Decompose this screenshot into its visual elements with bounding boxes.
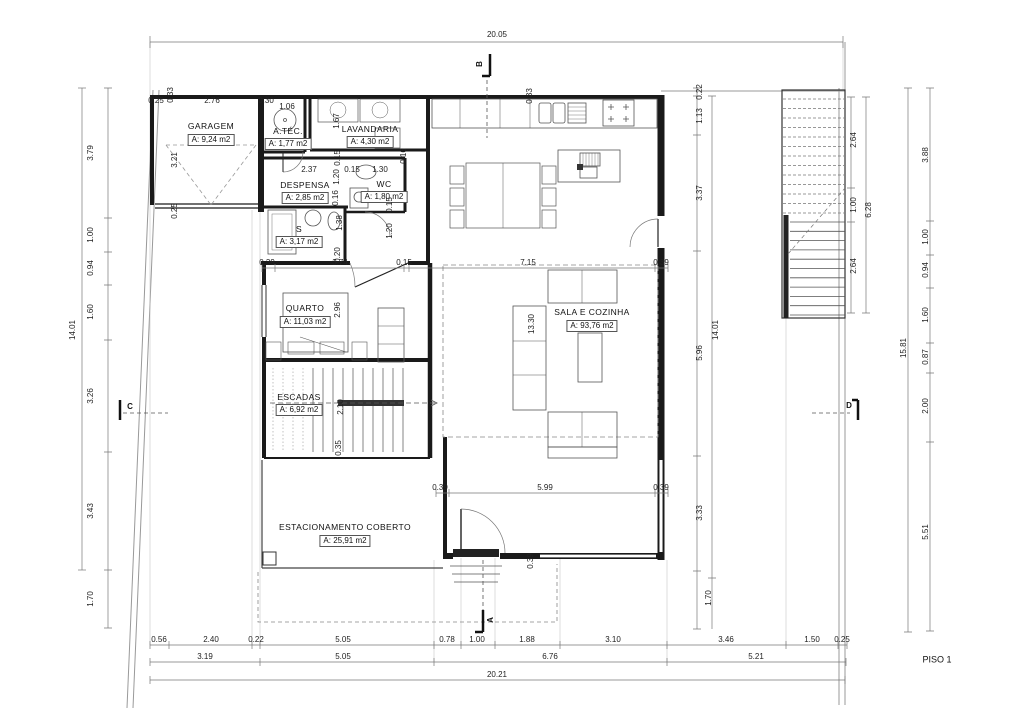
dim: 3.37 xyxy=(696,185,704,201)
room-area-atec: A: 1,77 m2 xyxy=(265,138,312,150)
dim: 1.70 xyxy=(705,590,713,606)
sink-basin xyxy=(553,103,565,123)
room-area-quarto: A: 11,03 m2 xyxy=(280,316,331,328)
dim: 0.35 xyxy=(335,440,343,456)
dim: 0.78 xyxy=(439,636,455,644)
plan-linework xyxy=(0,0,1010,720)
dim: 6.76 xyxy=(542,653,558,661)
dim: 5.05 xyxy=(335,636,351,644)
dim: 3.43 xyxy=(87,503,95,519)
drainer xyxy=(568,103,586,123)
dim: 1.06 xyxy=(279,103,295,111)
section-marker-a: A xyxy=(487,617,495,623)
room-area-s: A: 3,17 m2 xyxy=(276,236,323,248)
room-area-sala: A: 93,76 m2 xyxy=(566,320,617,332)
stove xyxy=(603,100,634,126)
dim: 3.46 xyxy=(718,636,734,644)
dim: 1.67 xyxy=(333,113,341,129)
room-label-estacionamento: ESTACIONAMENTO COBERTO xyxy=(279,523,411,532)
room-area-lavandaria: A: 4,30 m2 xyxy=(347,136,394,148)
floor-label: PISO 1 xyxy=(922,656,951,665)
dim: 5.96 xyxy=(696,345,704,361)
room-label-garagem: GARAGEM xyxy=(188,122,234,131)
sink-basin xyxy=(539,103,551,123)
garage-door-dashes xyxy=(166,145,256,205)
dim: 0.15 xyxy=(334,150,342,166)
dim: 1.30 xyxy=(372,166,388,174)
dim-mid-total: 14.01 xyxy=(712,320,720,340)
dim: 1.38 xyxy=(336,215,344,231)
section-marker-c: C xyxy=(127,403,133,411)
section-marker-d: D xyxy=(846,402,852,410)
dim: 1.13 xyxy=(696,108,704,124)
room-label-lavandaria: LAVANDARIA xyxy=(342,125,399,134)
dim: 0.39 xyxy=(653,484,669,492)
dim: 0.15 xyxy=(396,259,412,267)
dim: 5.99 xyxy=(537,484,553,492)
basin xyxy=(305,210,321,226)
dim: 3.33 xyxy=(696,505,704,521)
dim: 0.94 xyxy=(87,260,95,276)
dim: 0.39 xyxy=(653,259,669,267)
dim: 0.16 xyxy=(332,190,340,206)
dim: 0.94 xyxy=(922,262,930,278)
room-label-escadas: ESCADAS xyxy=(277,393,320,402)
dim: 5.21 xyxy=(748,653,764,661)
dim: 0.15 xyxy=(344,166,360,174)
dim: 1.88 xyxy=(519,636,535,644)
dim: 3.19 xyxy=(197,653,213,661)
dim: 1.20 xyxy=(333,169,341,185)
dim: 3.26 xyxy=(87,388,95,404)
dim: 0.39 xyxy=(432,484,448,492)
dim: 0.33 xyxy=(167,87,175,103)
dim: 0.15 xyxy=(386,197,394,213)
dim: 0.22 xyxy=(696,84,704,100)
dim: 2.40 xyxy=(203,636,219,644)
dim: 1.00 xyxy=(469,636,485,644)
room-label-sala: SALA E COZINHA xyxy=(554,308,630,317)
dim: 3.74 xyxy=(332,259,348,267)
extension-lines xyxy=(150,42,843,662)
room-area-estacionamento: A: 25,91 m2 xyxy=(319,535,370,547)
dim: 0.39 xyxy=(259,259,275,267)
kitchen-counter xyxy=(432,99,657,128)
dim: 3.21 xyxy=(171,152,179,168)
floor-plan-sheet: GARAGEM A: 9,24 m2 A.TÉC. A: 1,77 m2 LAV… xyxy=(0,0,1010,720)
dim: 0.39 xyxy=(527,553,535,569)
dim: 3.88 xyxy=(922,147,930,163)
dim: 5.05 xyxy=(335,653,351,661)
dim: 2.64 xyxy=(850,132,858,148)
dim: 0.22 xyxy=(248,636,264,644)
dim: 1.70 xyxy=(87,591,95,607)
dim: 2.76 xyxy=(204,97,220,105)
dim: 2.00 xyxy=(922,398,930,414)
room-label-atec: A.TÉC. xyxy=(273,127,303,136)
dim: 1.60 xyxy=(922,307,930,323)
room-label-despensa: DESPENSA xyxy=(280,181,330,190)
dim: 1.20 xyxy=(386,223,394,239)
dim: 3.79 xyxy=(87,145,95,161)
dim: 1.60 xyxy=(87,304,95,320)
room-area-escadas: A: 6,92 m2 xyxy=(276,404,323,416)
room-area-wc: A: 1,80 m2 xyxy=(361,191,408,203)
dim-right-total: 15.81 xyxy=(900,338,908,358)
carport-outline xyxy=(258,460,557,622)
living-furniture xyxy=(513,270,617,458)
dim: 0.56 xyxy=(151,636,167,644)
section-marker-b: B xyxy=(476,61,484,67)
dim: 5.51 xyxy=(922,524,930,540)
dim: 3.10 xyxy=(605,636,621,644)
dim: 2.10 xyxy=(337,399,345,415)
kitchen-island xyxy=(558,150,620,182)
dim-bottom-total: 20.21 xyxy=(487,671,507,679)
room-area-garagem: A: 9,24 m2 xyxy=(188,134,235,146)
dim: 0.30 xyxy=(258,97,274,105)
dim: 0.25 xyxy=(834,636,850,644)
dim: 2.37 xyxy=(301,166,317,174)
void-dashed-outline xyxy=(443,265,658,437)
dim-stair-total: 6.28 xyxy=(865,202,873,218)
dining-table xyxy=(450,163,556,228)
dim: 2.64 xyxy=(850,258,858,274)
dim: 0.33 xyxy=(526,88,534,104)
wardrobe xyxy=(378,308,404,362)
dim: 7.15 xyxy=(520,259,536,267)
dim: 0.25 xyxy=(148,97,164,105)
room-area-despensa: A: 2,85 m2 xyxy=(282,192,329,204)
exterior-stairs xyxy=(782,90,845,318)
dim: 1.00 xyxy=(850,197,858,213)
dim: 13.30 xyxy=(528,314,536,334)
dim-left-total: 14.01 xyxy=(69,320,77,340)
room-label-wc: WC xyxy=(377,180,392,189)
dim: 2.96 xyxy=(334,302,342,318)
plot-boundary-lines xyxy=(127,42,845,708)
dim: 1.00 xyxy=(922,229,930,245)
room-label-s: S xyxy=(296,225,302,234)
room-label-quarto: QUARTO xyxy=(286,304,324,313)
dim: 1.50 xyxy=(804,636,820,644)
dim: 1.00 xyxy=(87,227,95,243)
dim-top-total: 20.05 xyxy=(487,31,507,39)
dim: 0.87 xyxy=(922,349,930,365)
dim: 0.16 xyxy=(400,148,408,164)
dim: 0.25 xyxy=(171,203,179,219)
